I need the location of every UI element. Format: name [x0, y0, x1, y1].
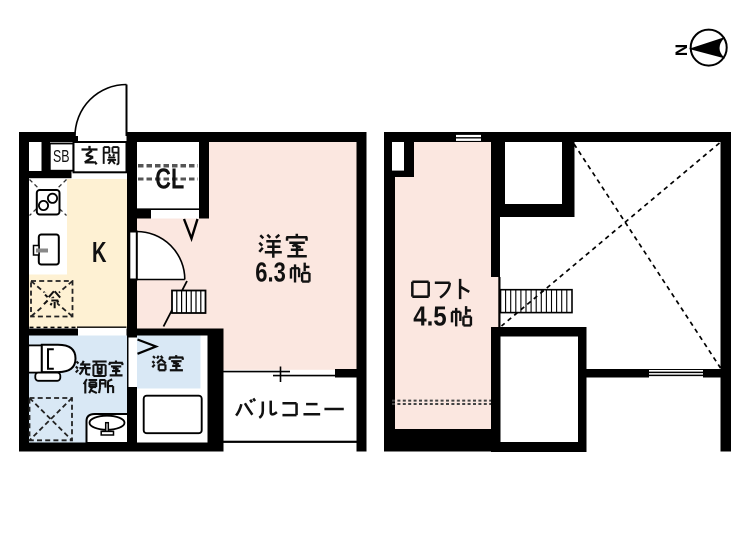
svg-text:6.3: 6.3	[255, 257, 285, 288]
svg-text:N: N	[672, 44, 691, 56]
svg-text:K: K	[92, 237, 107, 269]
svg-text:CL: CL	[155, 164, 184, 196]
svg-text:SB: SB	[53, 146, 70, 166]
svg-text:4.5: 4.5	[413, 301, 447, 332]
